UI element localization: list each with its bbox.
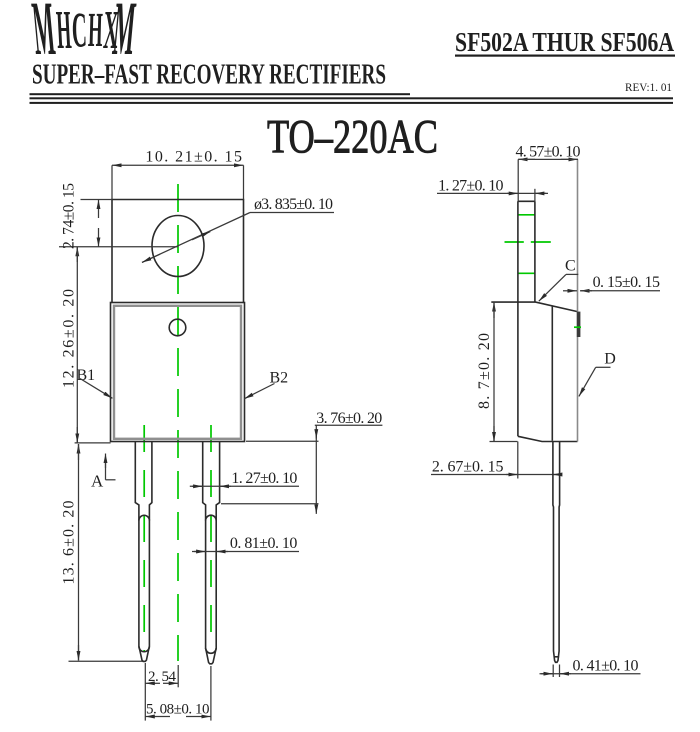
svg-text:SUPER–FAST RECOVERY RECTIFIERS: SUPER–FAST RECOVERY RECTIFIERS	[32, 59, 386, 91]
svg-text:0. 15±0. 15: 0. 15±0. 15	[593, 274, 660, 291]
svg-text:5. 08±0. 10: 5. 08±0. 10	[146, 702, 210, 718]
svg-text:ø3. 835±0. 10: ø3. 835±0. 10	[254, 196, 333, 213]
svg-text:C: C	[565, 258, 576, 275]
svg-text:D: D	[604, 351, 616, 368]
svg-text:REV:1. 01: REV:1. 01	[625, 82, 672, 94]
svg-text:2. 54: 2. 54	[148, 669, 177, 685]
svg-text:12. 26±0. 20: 12. 26±0. 20	[61, 289, 78, 388]
svg-text:0. 41±0. 10: 0. 41±0. 10	[573, 658, 639, 675]
svg-text:SF502A THUR SF506A: SF502A THUR SF506A	[455, 27, 674, 57]
svg-text:3. 76±0. 20: 3. 76±0. 20	[316, 410, 382, 427]
svg-text:TO–220AC: TO–220AC	[267, 111, 438, 164]
svg-text:2. 74±0. 15: 2. 74±0. 15	[61, 183, 78, 249]
svg-text:2. 67±0. 15: 2. 67±0. 15	[432, 459, 504, 476]
svg-text:1. 27±0. 10: 1. 27±0. 10	[231, 470, 297, 487]
svg-text:C: C	[71, 1, 87, 57]
svg-text:10. 21±0. 15: 10. 21±0. 15	[145, 149, 242, 166]
svg-text:H: H	[88, 2, 104, 57]
svg-text:0. 81±0. 10: 0. 81±0. 10	[230, 535, 298, 552]
svg-text:1. 27±0. 10: 1. 27±0. 10	[438, 178, 503, 195]
svg-text:A: A	[91, 472, 104, 491]
svg-text:13. 6±0. 20: 13. 6±0. 20	[61, 501, 78, 585]
svg-text:4. 57±0. 10: 4. 57±0. 10	[516, 144, 581, 161]
